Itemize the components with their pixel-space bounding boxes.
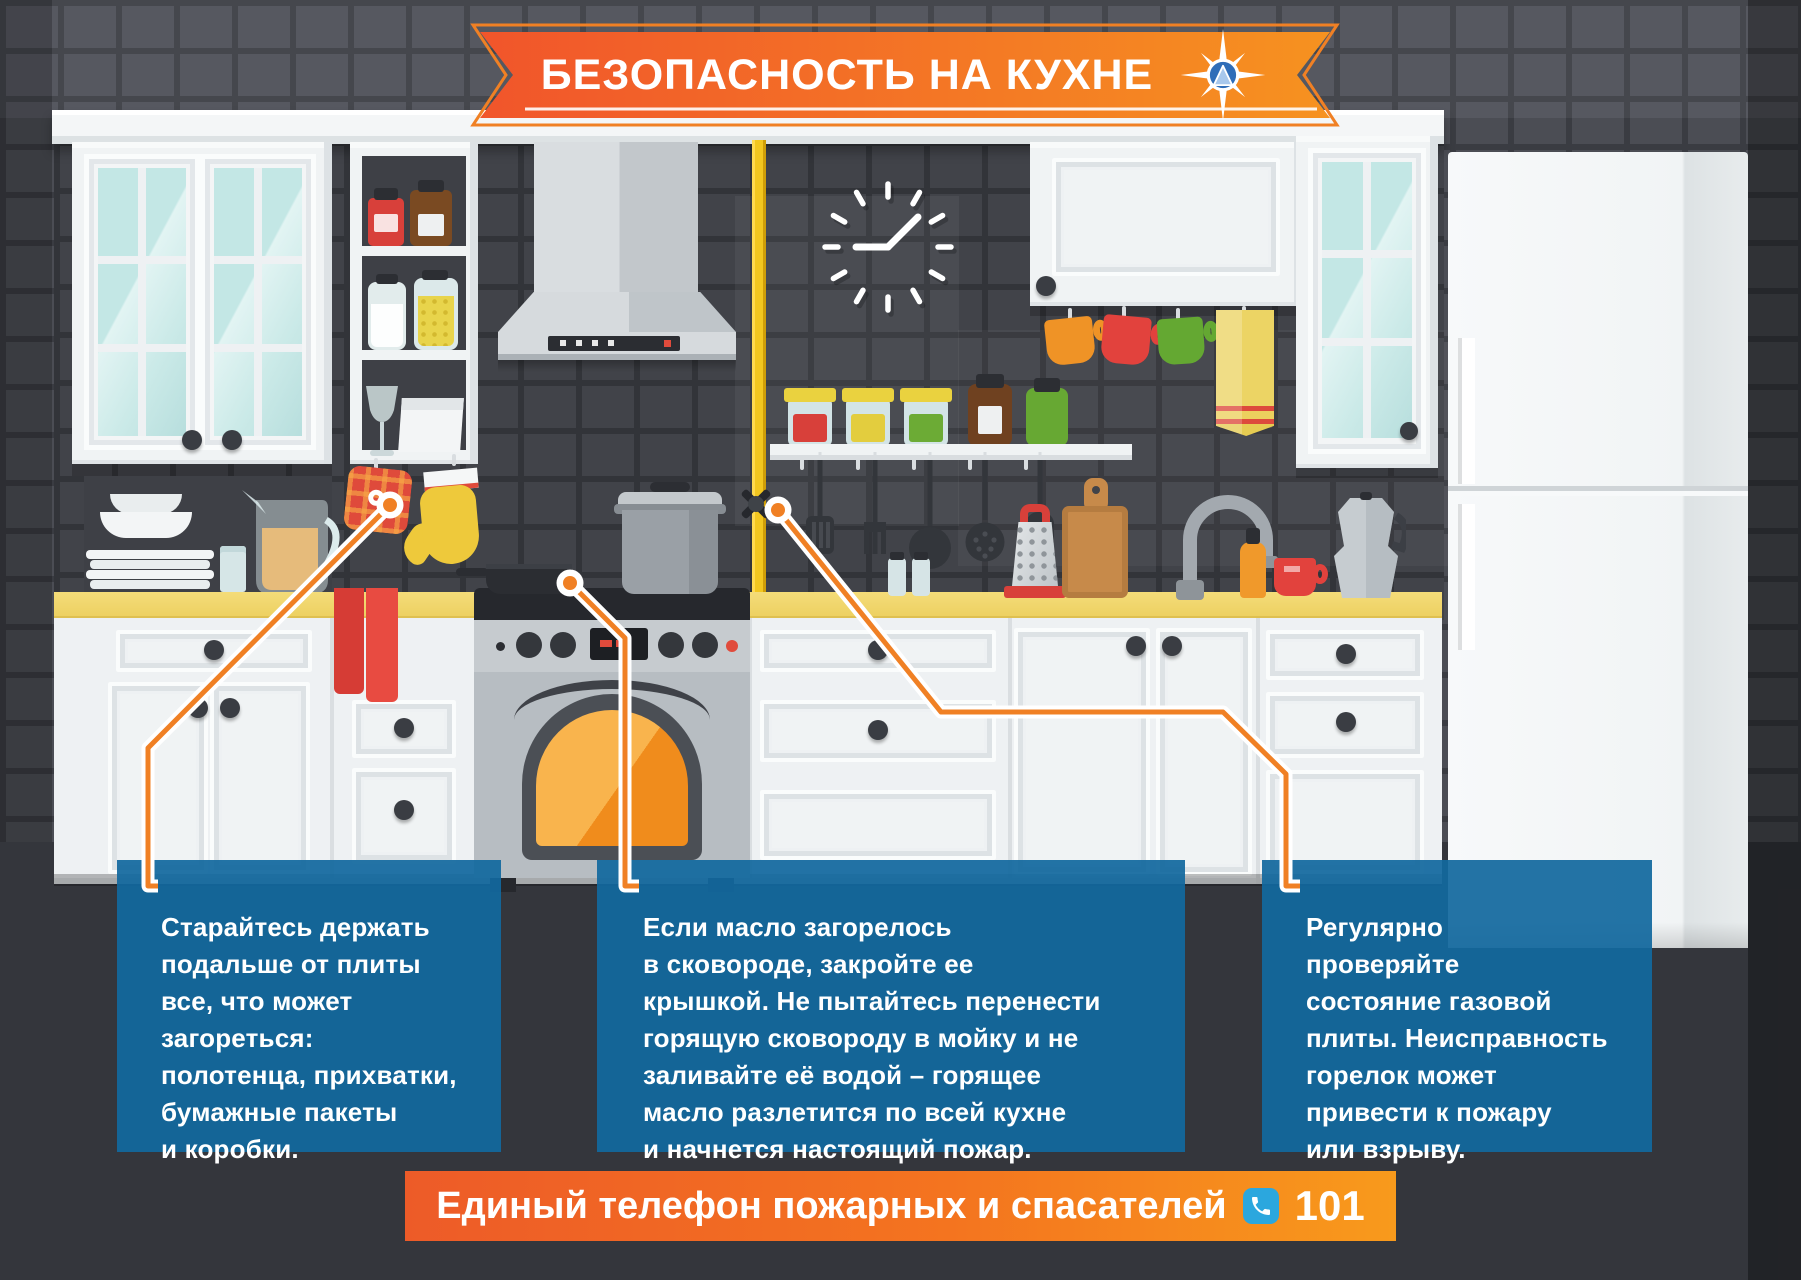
fridge-divider <box>1448 491 1748 496</box>
drawer-knob <box>204 640 224 660</box>
shelf-board <box>362 350 466 360</box>
phone-receiver-icon <box>1243 1188 1279 1224</box>
kitchen-towel-red <box>330 588 404 702</box>
hood-power-light <box>664 340 671 347</box>
tip-text: Если масло загорелось в сковороде, закро… <box>643 909 1175 1168</box>
hood-button <box>592 340 598 346</box>
kitchen-towel-yellow <box>1216 310 1274 436</box>
bottle-lid <box>376 274 398 284</box>
right-shadow <box>1748 0 1801 1280</box>
refrigerator <box>1448 152 1748 948</box>
fridge-handle <box>1462 504 1475 650</box>
towel-fold <box>1216 310 1242 436</box>
bread-box-lid <box>401 398 464 410</box>
cabinet-divider <box>1256 618 1260 884</box>
jar-lid <box>1034 378 1060 392</box>
stove-power-light <box>726 640 738 652</box>
cabinet-knob <box>220 698 240 718</box>
potholder-ring <box>367 489 385 507</box>
spice-lid <box>784 388 836 402</box>
plate <box>86 550 214 559</box>
hood-button <box>576 340 582 346</box>
gas-pipe <box>752 140 766 618</box>
dish-soap-bottle <box>1240 542 1266 598</box>
plate <box>90 560 210 569</box>
spice-jar <box>846 398 890 446</box>
towel-flap <box>366 588 398 702</box>
jar-lid <box>422 270 448 280</box>
jar-label <box>978 406 1002 434</box>
emergency-phone-label: Единый телефон пожарных и спасателей <box>436 1185 1226 1228</box>
shaker-cap <box>890 552 904 560</box>
emergency-phone-number: 101 <box>1295 1182 1365 1230</box>
muntin <box>214 344 302 352</box>
drawer-knob <box>394 718 414 738</box>
muntin <box>254 168 262 436</box>
grater-base <box>1004 586 1066 598</box>
tip-text: Старайтесь держать подальше от плиты все… <box>161 909 495 1168</box>
tip-box-gas-stove: Регулярно проверяйте состояние газовой п… <box>1262 860 1652 1152</box>
jam-jar-red <box>368 198 404 246</box>
bread-box <box>398 398 464 452</box>
muntin <box>98 344 186 352</box>
display-segment <box>616 640 623 647</box>
drawer-knob <box>1336 712 1356 732</box>
hood-control-strip <box>548 336 680 351</box>
shaker-cap <box>914 552 928 560</box>
wine-glass-icon <box>364 384 400 458</box>
door-front <box>1014 628 1150 876</box>
muntin <box>1322 250 1412 258</box>
door-front <box>1156 628 1252 876</box>
cabinet-knob <box>1126 636 1146 656</box>
red-cup <box>1274 558 1316 596</box>
jar-label <box>374 214 398 232</box>
wall-clock <box>818 177 958 317</box>
sauce-jar-green <box>1026 388 1068 446</box>
plate <box>86 570 214 579</box>
cabinet-knob <box>1162 636 1182 656</box>
grater-body <box>1012 522 1058 586</box>
muntin <box>1363 162 1371 438</box>
emercom-compass-star-icon <box>1177 29 1269 121</box>
pot-lid-handle <box>650 482 690 492</box>
spice-jar <box>904 398 948 446</box>
kitchen-safety-infographic: Старайтесь держать подальше от плиты все… <box>0 0 1801 1280</box>
drawer-knob <box>868 640 888 660</box>
milk-content <box>371 304 403 347</box>
cabinet-knob <box>222 430 242 450</box>
cabinet-knob <box>1400 422 1418 440</box>
tip-box-flammables: Старайтесь держать подальше от плиты все… <box>117 860 501 1152</box>
milk-bottle <box>368 282 406 350</box>
jam-jar-brown <box>410 190 452 246</box>
spice-content-yellow <box>851 414 885 442</box>
muntin <box>1322 338 1412 346</box>
jar-lid <box>374 188 398 200</box>
cabinet-shadow <box>72 464 332 476</box>
cutting-board <box>1062 506 1128 598</box>
stock-pot <box>622 510 718 594</box>
cabinet-knob <box>1036 276 1056 296</box>
hood-button <box>608 340 614 346</box>
drawer-knob <box>394 800 414 820</box>
stove-knob <box>550 632 576 658</box>
frying-pan <box>486 564 572 594</box>
mug-red <box>1100 314 1152 366</box>
cabinet-panel <box>1052 158 1280 276</box>
board-hole <box>1092 486 1100 494</box>
drawer-knob <box>1336 644 1356 664</box>
muntin <box>138 168 146 436</box>
cabinet-shadow <box>1296 468 1438 478</box>
jar-lid <box>976 374 1004 388</box>
cabinet-knob <box>182 430 202 450</box>
salt-shaker <box>888 558 906 596</box>
fridge-handle <box>1462 338 1475 484</box>
tip-box-oil-fire: Если масло загорелось в сковороде, закро… <box>597 860 1185 1152</box>
juice-pitcher <box>242 484 342 596</box>
gas-valve-center <box>748 496 764 512</box>
spice-jar <box>788 398 832 446</box>
emergency-phone-bar: Единый телефон пожарных и спасателей 101 <box>405 1171 1396 1241</box>
bowl <box>110 494 182 514</box>
spice-lid <box>900 388 952 402</box>
shelf-board <box>362 246 466 256</box>
grain-content <box>418 296 454 346</box>
muntin <box>214 256 302 264</box>
pepper-shaker <box>912 558 930 596</box>
hood-flare <box>498 292 736 332</box>
potholder <box>343 465 413 535</box>
stove-knob <box>658 632 684 658</box>
soap-pump <box>1246 528 1260 544</box>
moka-coffee-pot <box>1326 492 1406 600</box>
hood-duct <box>534 142 698 292</box>
door-front <box>1266 770 1424 874</box>
stove-knob <box>692 632 718 658</box>
drawer-front <box>760 790 996 860</box>
drawer-knob <box>868 720 888 740</box>
spice-content-green <box>909 414 943 442</box>
towel-flap <box>334 588 364 694</box>
jar-lid <box>418 180 444 192</box>
grain-jar-yellow <box>414 278 458 350</box>
stove-indicator <box>496 642 505 651</box>
page-title: БЕЗОПАСНОСТЬ НА КУХНЕ <box>541 51 1153 100</box>
hook <box>452 454 456 466</box>
jar-label <box>418 214 444 236</box>
mug-green <box>1156 316 1205 365</box>
frying-pan-handle <box>456 568 488 576</box>
mug-orange <box>1044 316 1097 367</box>
plate <box>90 580 210 589</box>
left-shadow <box>0 0 52 842</box>
cabinet-knob <box>188 698 208 718</box>
spice-content-red <box>793 414 827 442</box>
spice-lid <box>842 388 894 402</box>
cup-mark <box>1284 566 1300 572</box>
muntin <box>98 256 186 264</box>
bowl <box>100 512 192 538</box>
stove-knob <box>516 632 542 658</box>
tip-text: Регулярно проверяйте состояние газовой п… <box>1306 909 1644 1168</box>
cabinet-divider <box>1008 618 1012 884</box>
stove-display <box>590 628 648 660</box>
display-segment <box>600 640 612 647</box>
hood-button <box>560 340 566 346</box>
faucet <box>1150 478 1290 600</box>
hood-shadow <box>498 360 736 372</box>
sauce-jar-brown <box>968 384 1012 446</box>
banner-content: БЕЗОПАСНОСТЬ НА КУХНЕ <box>480 30 1330 120</box>
